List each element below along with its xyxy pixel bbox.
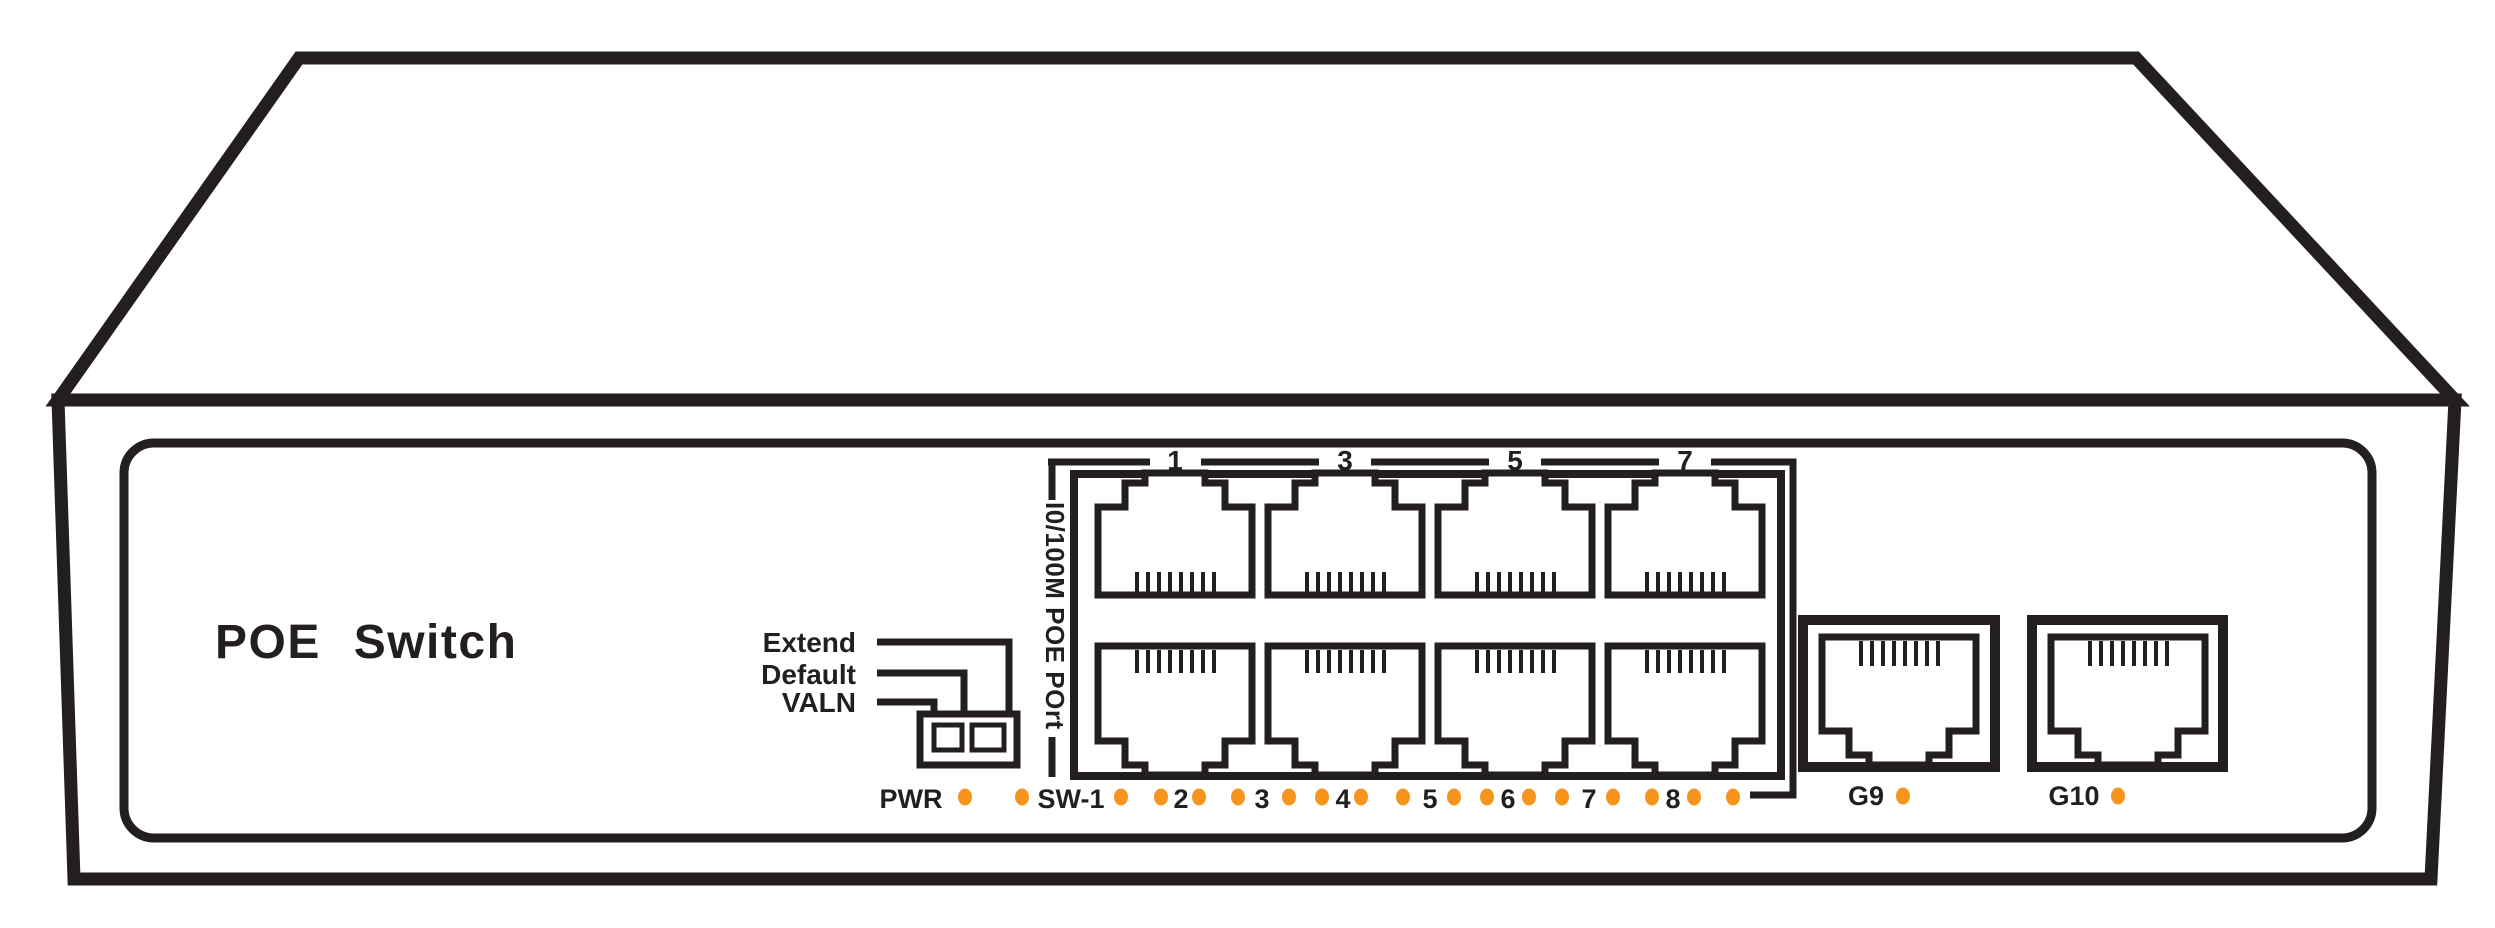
led-dot — [1015, 789, 1029, 806]
led-dot — [1687, 789, 1701, 806]
uplink-port-g9 — [1803, 620, 1995, 767]
led-port-number: 6 — [1500, 784, 1515, 814]
dip-label-extend: Extend — [763, 627, 856, 658]
led-dot — [1231, 789, 1245, 806]
led-dot — [1522, 789, 1536, 806]
uplink-port-g10 — [2032, 620, 2223, 767]
led-port-number: 4 — [1335, 784, 1350, 814]
g9-led — [1896, 788, 1910, 805]
poe-switch-diagram: POE Switch Extend Default VALN I0/100M P… — [0, 0, 2495, 928]
chassis-top-face — [58, 58, 2455, 400]
led-port-number: 8 — [1665, 784, 1680, 814]
led-port-number: 7 — [1581, 784, 1596, 814]
led-port-number: 2 — [1173, 784, 1188, 814]
led-dot — [1354, 789, 1368, 806]
led-dot — [1555, 789, 1569, 806]
sw1-label: SW-1 — [1038, 784, 1105, 814]
dip-label-vlan: VALN — [782, 687, 856, 718]
led-port-number: 5 — [1422, 784, 1437, 814]
led-dot — [1282, 789, 1296, 806]
led-port-number: 3 — [1254, 784, 1269, 814]
device-title: POE Switch — [215, 616, 517, 669]
led-dot — [1154, 789, 1168, 806]
led-dot — [1447, 789, 1461, 806]
led-dot — [1192, 789, 1206, 806]
led-dot — [1645, 789, 1659, 806]
led-dot — [1396, 789, 1410, 806]
diagram-canvas: POE Switch Extend Default VALN I0/100M P… — [0, 0, 2495, 928]
led-dot — [958, 789, 972, 806]
poe-port-bracket-label: I0/100M POE POrt — [1040, 502, 1070, 730]
pwr-label: PWR — [880, 784, 943, 814]
dip-label-default: Default — [761, 659, 856, 690]
led-dot — [1606, 789, 1620, 806]
g10-led — [2111, 788, 2125, 805]
led-dot — [1480, 789, 1494, 806]
led-dot — [1315, 789, 1329, 806]
g9-label: G9 — [1848, 781, 1884, 811]
g10-label: G10 — [2048, 781, 2099, 811]
led-dot — [1726, 789, 1740, 806]
led-dot — [1114, 789, 1128, 806]
